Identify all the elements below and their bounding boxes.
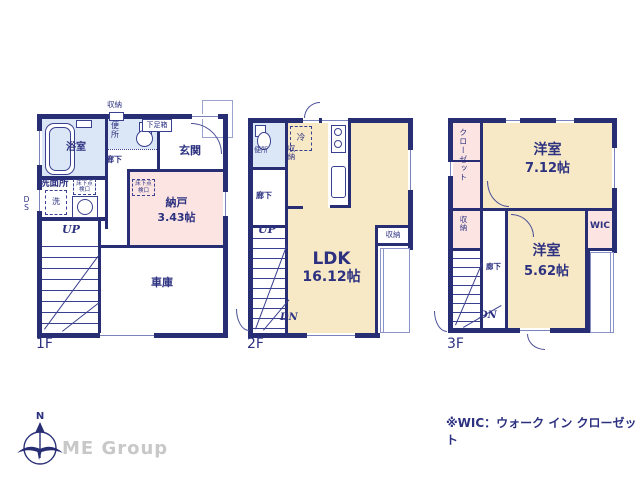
bath-label: 浴室: [66, 142, 86, 153]
storeroom-label: 納戸: [130, 197, 223, 209]
storage-top-box: [109, 112, 124, 121]
wall: [453, 248, 480, 251]
wall: [348, 123, 351, 208]
stairs-down-label: DN: [479, 310, 497, 321]
floorplan-canvas: 洗 床下点検口 床下点検口 下足箱 収納 浴室 便所 玄関 廊下 洗面所 納戸 …: [0, 0, 640, 480]
room2-label: 洋室: [508, 244, 585, 259]
compass: N: [14, 414, 66, 470]
kitchen-sink: [331, 166, 346, 198]
burner: [334, 140, 342, 148]
door-swing: [527, 334, 545, 350]
storage-right-label: 収納: [378, 231, 408, 239]
floor3-label: 3F: [447, 337, 464, 352]
storage-label: 収納: [459, 216, 468, 233]
wall: [288, 206, 303, 209]
hall-label: 廊下: [486, 263, 501, 271]
compass-n-label: N: [14, 411, 66, 422]
wall: [330, 205, 351, 208]
door-swing: [236, 309, 249, 331]
floor1-label: 1F: [36, 337, 53, 352]
wall: [127, 169, 223, 172]
wic-label: WIC: [585, 222, 615, 232]
burner: [334, 128, 342, 136]
compass-north-icon: [14, 414, 66, 470]
stairs-down-label: DN: [280, 312, 298, 323]
window: [322, 118, 348, 123]
room1-size-label: 7.12帖: [483, 162, 612, 176]
wall: [105, 119, 108, 229]
wall: [101, 245, 223, 248]
window: [612, 148, 617, 188]
ldk-size-label: 16.12帖: [288, 270, 375, 285]
window: [223, 192, 228, 216]
wall: [253, 167, 285, 170]
underfloor-hatch: 床下点検口: [73, 179, 96, 195]
me-group-logo: ME Group: [62, 438, 168, 459]
shoe-box: 下足箱: [142, 119, 172, 132]
window: [408, 150, 413, 190]
storage-left-label: 収納: [287, 145, 296, 162]
room1-label: 洋室: [483, 143, 612, 158]
door-opening: [303, 118, 319, 123]
window: [448, 162, 453, 176]
door-swing: [434, 311, 447, 332]
stairs-up-label: UP: [258, 224, 276, 236]
toilet-label: 便所: [254, 147, 268, 155]
shoe-box-label: 下足箱: [147, 122, 168, 130]
toilet-bowl: [136, 130, 153, 147]
hall-label: 廊下: [256, 192, 272, 201]
bath-counter: [76, 120, 92, 128]
underfloor-hatch: 床下点検口: [132, 179, 155, 196]
window: [37, 190, 42, 211]
window: [307, 333, 355, 338]
washer-label: 洗: [52, 198, 60, 207]
window: [556, 118, 574, 123]
balcony-door-opening: [520, 328, 550, 333]
closet-label: クローゼット: [458, 128, 467, 214]
wall-dotted: [108, 149, 157, 150]
washroom-label: 洗面所: [40, 179, 69, 189]
balcony: [380, 248, 410, 333]
garage-label: 車庫: [101, 277, 223, 289]
floor2-label: 2F: [247, 337, 264, 352]
storeroom-size-label: 3.43帖: [130, 212, 223, 224]
duct-space-label: DS: [22, 196, 31, 213]
fridge-label: 冷: [297, 134, 306, 143]
entrance-door-opening: [192, 114, 218, 119]
wall: [453, 208, 612, 211]
door-swing: [304, 102, 320, 118]
garage-door-opening: [100, 333, 154, 338]
room2-size-label: 5.62帖: [508, 265, 585, 279]
wall: [127, 172, 130, 248]
vanity-sink: [77, 199, 93, 215]
wall: [375, 246, 378, 333]
window: [37, 131, 42, 165]
stairs-up-label: UP: [62, 224, 80, 236]
window: [506, 118, 520, 123]
entrance-label: 玄関: [160, 145, 220, 157]
hall-label: 廊下: [106, 156, 122, 165]
balcony-rail: [383, 248, 384, 333]
underfloor-hatch-label: 床下点検口: [74, 181, 95, 193]
underfloor-hatch-label: 床下点検口: [133, 181, 154, 193]
wic-note: ※WIC：ウォーク イン クローゼット: [446, 414, 640, 448]
ldk-label: LDK: [288, 250, 375, 269]
wall: [375, 243, 408, 246]
toilet-label: 便所: [110, 122, 120, 140]
balcony-rail: [610, 252, 611, 333]
storage-top-label: 収納: [107, 101, 122, 109]
washer-space: 洗: [45, 190, 67, 215]
